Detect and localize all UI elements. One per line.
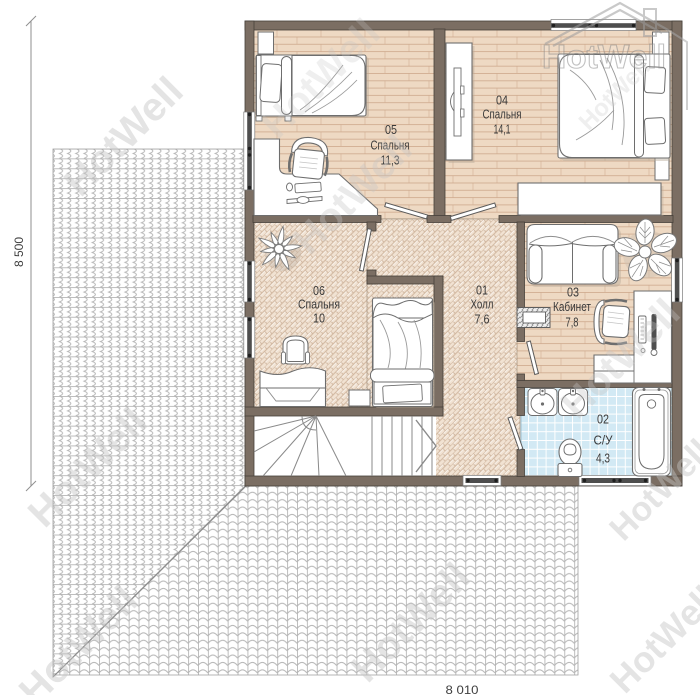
- svg-text:С/У: С/У: [594, 433, 614, 448]
- svg-text:7,6: 7,6: [475, 312, 490, 327]
- svg-text:01: 01: [476, 283, 488, 298]
- svg-text:8 010: 8 010: [446, 683, 479, 695]
- svg-text:14,1: 14,1: [494, 122, 511, 137]
- svg-text:10: 10: [313, 311, 325, 326]
- svg-text:8 500: 8 500: [12, 237, 26, 267]
- svg-text:7,8: 7,8: [566, 315, 579, 330]
- svg-text:03: 03: [567, 285, 579, 300]
- svg-text:02: 02: [597, 412, 609, 427]
- svg-text:4,3: 4,3: [596, 451, 610, 466]
- svg-text:HotWell: HotWell: [542, 38, 666, 75]
- svg-text:Спальня: Спальня: [298, 297, 340, 312]
- svg-text:04: 04: [496, 93, 508, 108]
- svg-text:Спальня: Спальня: [483, 107, 522, 122]
- svg-text:Кабинет: Кабинет: [553, 299, 591, 314]
- svg-text:Холл: Холл: [471, 297, 494, 312]
